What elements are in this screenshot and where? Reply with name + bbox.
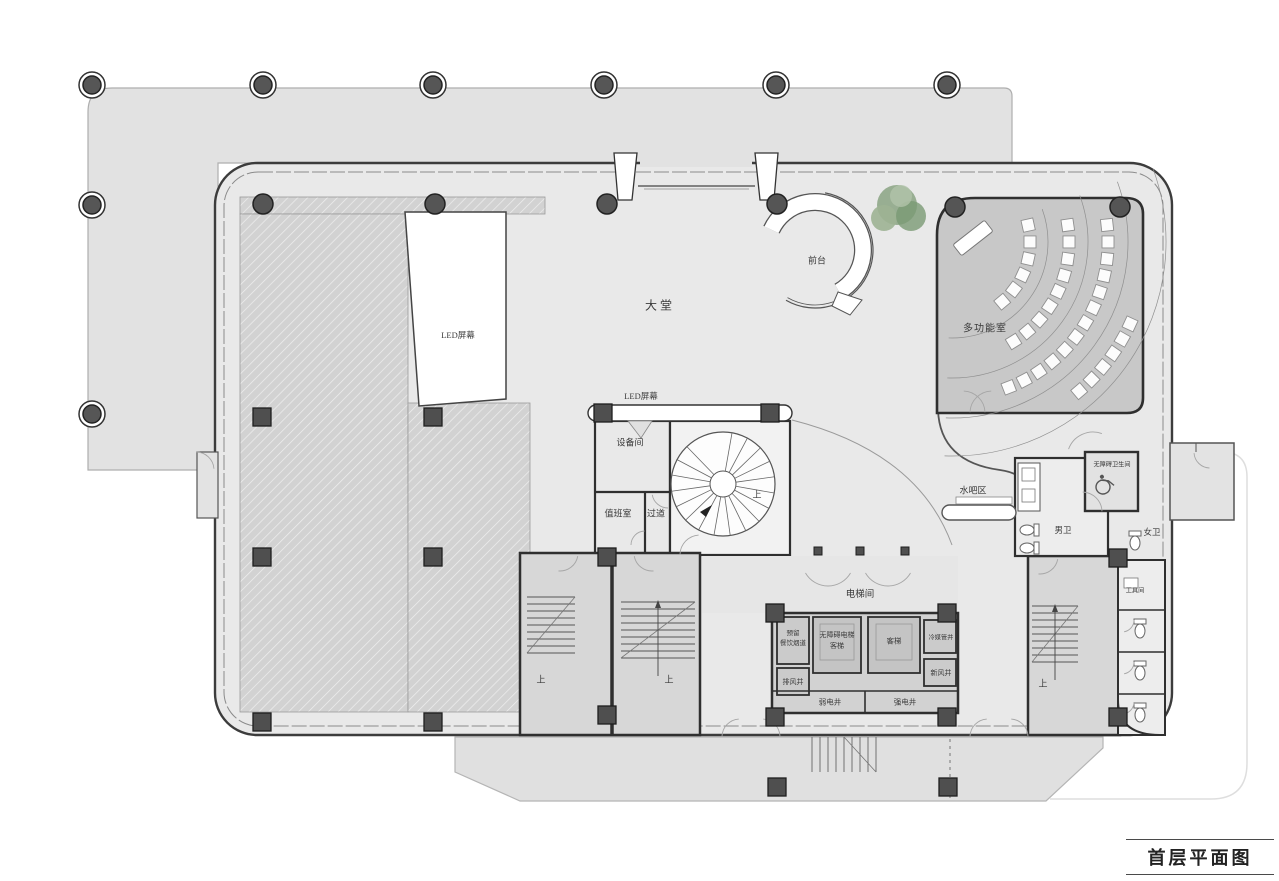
floor-plan-page: 大堂 前台 多功能室 LED屏幕 LED屏幕 设备间 值班室 过道 上 上 上 … (0, 0, 1279, 881)
label-exhaust-shaft: 排风井 (783, 677, 804, 687)
room-label-lobby: 大堂 (645, 297, 675, 314)
label-accessible-elevator-2: 客梯 (830, 641, 844, 651)
room-label-equipment: 设备间 (616, 436, 643, 449)
room-label-duty: 值班室 (604, 507, 631, 520)
label-reserved-flue-1: 预留 (787, 627, 800, 637)
label-led-screen-2: LED屏幕 (624, 390, 658, 402)
right-exit-corridor (1170, 443, 1234, 520)
label-weak-current-shaft: 弱电井 (819, 697, 842, 708)
label-reserved-flue-2: 餐饮烟道 (780, 637, 806, 647)
stairwell-right (1028, 556, 1120, 735)
label-strong-current-shaft: 强电井 (894, 697, 917, 708)
room-label-male-wc: 男卫 (1054, 524, 1071, 536)
room-label-water-bar: 水吧区 (959, 484, 986, 497)
label-up-stair-mid: 上 (664, 673, 673, 686)
label-passenger-elevator: 客梯 (887, 636, 902, 647)
multifunction-room (937, 169, 1166, 456)
label-led-screen-1: LED屏幕 (441, 329, 475, 341)
label-up-stair-right: 上 (1038, 677, 1047, 690)
room-label-accessible-wc: 无障碍卫生间 (1093, 460, 1130, 469)
room-label-multifunction: 多功能室 (963, 320, 1007, 335)
sink-counter (1018, 463, 1040, 511)
label-fresh-air-shaft: 新风井 (931, 668, 952, 678)
label-up-stair-left: 上 (536, 673, 545, 686)
spiral-stair (671, 432, 775, 536)
room-label-tool-room: 工具间 (1126, 586, 1145, 595)
label-accessible-elevator-1: 无障碍电梯 (820, 630, 855, 640)
left-wall-niche (197, 452, 218, 518)
label-up-spiral: 上 (752, 488, 761, 501)
label-refrigerant-shaft: 冷媒管井 (929, 633, 954, 642)
led-screen-panel (405, 212, 506, 406)
room-label-female-wc: 女卫 (1143, 526, 1160, 538)
room-label-reception: 前台 (808, 254, 826, 267)
room-label-elevator-hall: 电梯间 (846, 586, 875, 600)
room-label-corridor: 过道 (647, 507, 665, 520)
drawing-title: 首层平面图 (1126, 839, 1274, 875)
